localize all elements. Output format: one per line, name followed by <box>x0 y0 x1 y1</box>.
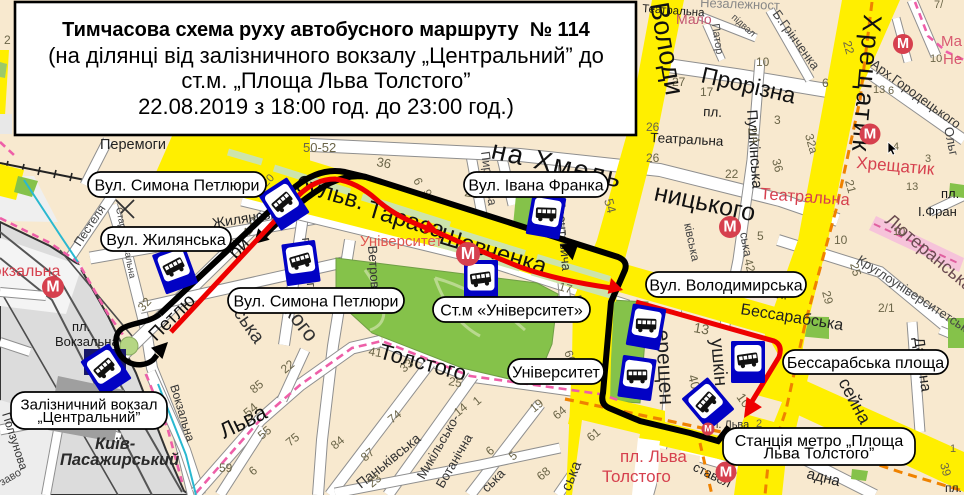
svg-text:Університет: Університет <box>360 233 442 250</box>
svg-text:М: М <box>46 279 59 296</box>
svg-text:3: 3 <box>925 153 931 165</box>
svg-text:17: 17 <box>700 85 714 99</box>
svg-text:3: 3 <box>774 113 781 127</box>
svg-text:Вул. Івана Франка: Вул. Івана Франка <box>468 177 603 194</box>
svg-text:М: М <box>864 125 877 142</box>
svg-text:ушкін: ушкін <box>706 338 731 387</box>
svg-text:Вул. Симона Петлюри: Вул. Симона Петлюри <box>234 293 399 310</box>
svg-text:26: 26 <box>646 151 660 165</box>
svg-text:М: М <box>461 243 476 263</box>
svg-text:Не: Не <box>943 51 962 68</box>
svg-text:Льва Толстого”: Льва Толстого” <box>764 445 875 462</box>
svg-text:Вул. Симона Петлюри: Вул. Симона Петлюри <box>95 177 260 194</box>
svg-text:22: 22 <box>725 167 739 181</box>
svg-text:10: 10 <box>893 226 905 238</box>
svg-text:6: 6 <box>822 76 829 90</box>
svg-text:Перемоги: Перемоги <box>100 137 166 153</box>
svg-text:пл.: пл. <box>945 481 962 495</box>
svg-text:50-52: 50-52 <box>303 140 336 155</box>
svg-text:Вул. Жилянська: Вул. Жилянська <box>106 232 226 249</box>
svg-text:25: 25 <box>447 374 463 390</box>
svg-text:Бессарабська площа: Бессарабська площа <box>787 355 944 372</box>
svg-text:22.08.2019 з 18:00 год. до 23:: 22.08.2019 з 18:00 год. до 23:00 год.) <box>138 94 514 119</box>
svg-text:ст.м. „Площа Льва Толстого”: ст.м. „Площа Льва Толстого” <box>181 68 470 93</box>
svg-text:Університет: Університет <box>512 364 600 381</box>
svg-text:(на ділянці від залізничного в: (на ділянці від залізничного вокзалу „Це… <box>48 43 604 68</box>
svg-text:пл. Льва: пл. Льва <box>620 447 687 466</box>
svg-text:М: М <box>723 219 736 236</box>
svg-text:26: 26 <box>646 120 660 134</box>
svg-text:Ма: Ма <box>941 33 963 50</box>
svg-text:пл.: пл. <box>703 104 723 120</box>
svg-text:„Центральний”: „Центральний” <box>38 409 141 426</box>
svg-text:Вул. Володимирська: Вул. Володимирська <box>649 277 802 294</box>
svg-text:Мало: Мало <box>676 11 712 27</box>
svg-text:Толстого: Толстого <box>602 467 671 486</box>
svg-text:13: 13 <box>906 181 918 193</box>
svg-text:Ст.м «Університет»: Ст.м «Університет» <box>440 302 583 319</box>
svg-text:5: 5 <box>757 229 764 243</box>
svg-text:2: 2 <box>4 33 11 47</box>
svg-text:6: 6 <box>888 85 894 97</box>
svg-text:59: 59 <box>219 461 233 475</box>
svg-text:7/: 7/ <box>934 0 944 11</box>
svg-text:М: М <box>897 36 909 52</box>
svg-text:І.Фран: І.Фран <box>918 204 957 219</box>
svg-text:М: М <box>720 463 733 480</box>
svg-text:пл.: пл. <box>72 319 90 334</box>
svg-text:36: 36 <box>375 154 392 171</box>
svg-text:41: 41 <box>367 344 383 360</box>
svg-text:10: 10 <box>756 55 770 69</box>
svg-text:10: 10 <box>930 53 942 65</box>
svg-text:Пасажирський: Пасажирський <box>60 451 179 469</box>
svg-text:1: 1 <box>950 443 956 455</box>
svg-text:10: 10 <box>834 233 848 247</box>
svg-text:М: М <box>704 423 712 434</box>
svg-text:27: 27 <box>672 75 686 89</box>
svg-text:2/1: 2/1 <box>878 301 895 315</box>
svg-text:пл.: пл. <box>941 186 959 201</box>
svg-text:Тимчасова схема руху автобусно: Тимчасова схема руху автобусного маршрут… <box>62 19 591 41</box>
svg-text:13: 13 <box>873 84 885 96</box>
